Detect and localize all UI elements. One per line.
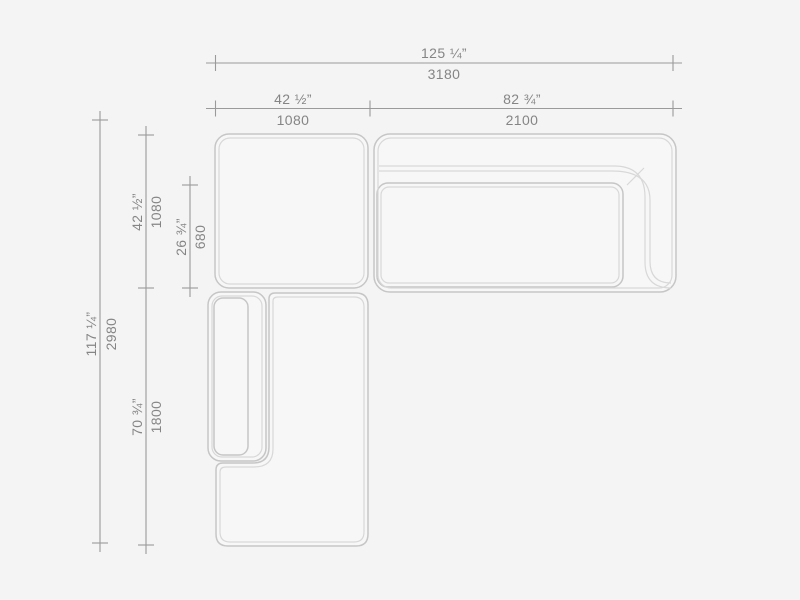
sofa-modules	[208, 134, 676, 546]
dim-label-side-lower-inches: 70 ¾”	[129, 398, 145, 436]
dim-label-side-total-mm: 2980	[103, 318, 119, 351]
dim-label-seat-depth-mm: 680	[192, 225, 208, 250]
dim-label-top-total-inches: 125 ¼”	[421, 45, 467, 61]
dimension-lines	[92, 55, 682, 554]
technical-drawing-canvas: 125 ¼” 3180 42 ½” 1080 82 ¾” 2100 117 ¼”…	[0, 0, 800, 600]
dim-label-top-left-mm: 1080	[277, 112, 310, 128]
dim-label-side-upper-inches: 42 ½”	[129, 193, 145, 231]
chaise-armrest-cushion	[214, 298, 248, 455]
dim-label-top-right-mm: 2100	[506, 112, 539, 128]
dim-label-top-right-inches: 82 ¾”	[503, 91, 541, 107]
dim-label-side-total-inches: 117 ¼”	[83, 312, 99, 357]
dim-label-top-total-mm: 3180	[428, 66, 461, 82]
dim-label-top-left-inches: 42 ½”	[274, 91, 312, 107]
dim-label-side-upper-mm: 1080	[148, 196, 164, 229]
dim-label-seat-depth-inches: 26 ¾”	[173, 218, 189, 256]
sofa-plan-svg: 125 ¼” 3180 42 ½” 1080 82 ¾” 2100 117 ¼”…	[0, 0, 800, 600]
dim-label-side-lower-mm: 1800	[148, 401, 164, 434]
right-seat-cushion	[377, 183, 623, 287]
corner-seat-module	[215, 134, 368, 288]
